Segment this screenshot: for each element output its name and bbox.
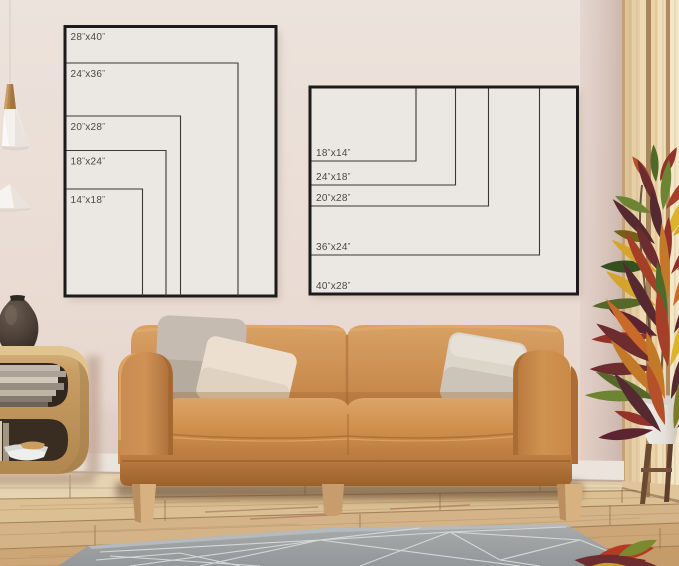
svg-text:20"x28": 20"x28"	[316, 192, 351, 204]
svg-text:18"x14": 18"x14"	[316, 147, 351, 159]
svg-text:14"x18": 14"x18"	[71, 194, 106, 206]
svg-text:40"x28": 40"x28"	[316, 280, 351, 292]
svg-text:24"x18": 24"x18"	[316, 171, 351, 183]
svg-text:18"x24": 18"x24"	[71, 156, 106, 168]
svg-text:28"x40": 28"x40"	[71, 31, 106, 43]
svg-text:24"x36": 24"x36"	[71, 68, 106, 80]
svg-text:20"x28": 20"x28"	[71, 121, 106, 133]
svg-text:36"x24": 36"x24"	[316, 241, 351, 253]
